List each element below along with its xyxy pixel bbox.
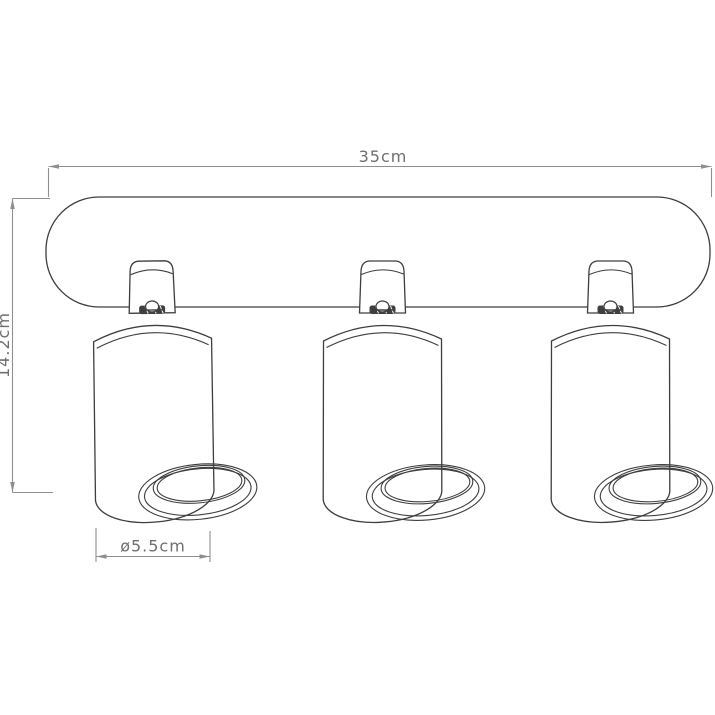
spotlight-dimension-diagram: 35cm 14.2cm ø5.5cm [0,0,715,715]
width-arrow-left [49,164,60,169]
width-dimension-label: 35cm [359,147,408,166]
diameter-arrow-left [96,554,107,559]
diameter-dimension-label: ø5.5cm [120,537,186,556]
height-dimension: 14.2cm [0,199,53,493]
width-arrow-right [701,164,712,169]
diameter-arrow-right [200,554,211,559]
height-arrow-bottom [10,482,15,493]
diameter-dimension: ø5.5cm [96,528,210,562]
technical-drawing-canvas: 35cm 14.2cm ø5.5cm [0,0,715,715]
width-dimension: 35cm [49,147,712,197]
height-arrow-top [10,199,15,210]
height-dimension-label: 14.2cm [0,312,13,378]
